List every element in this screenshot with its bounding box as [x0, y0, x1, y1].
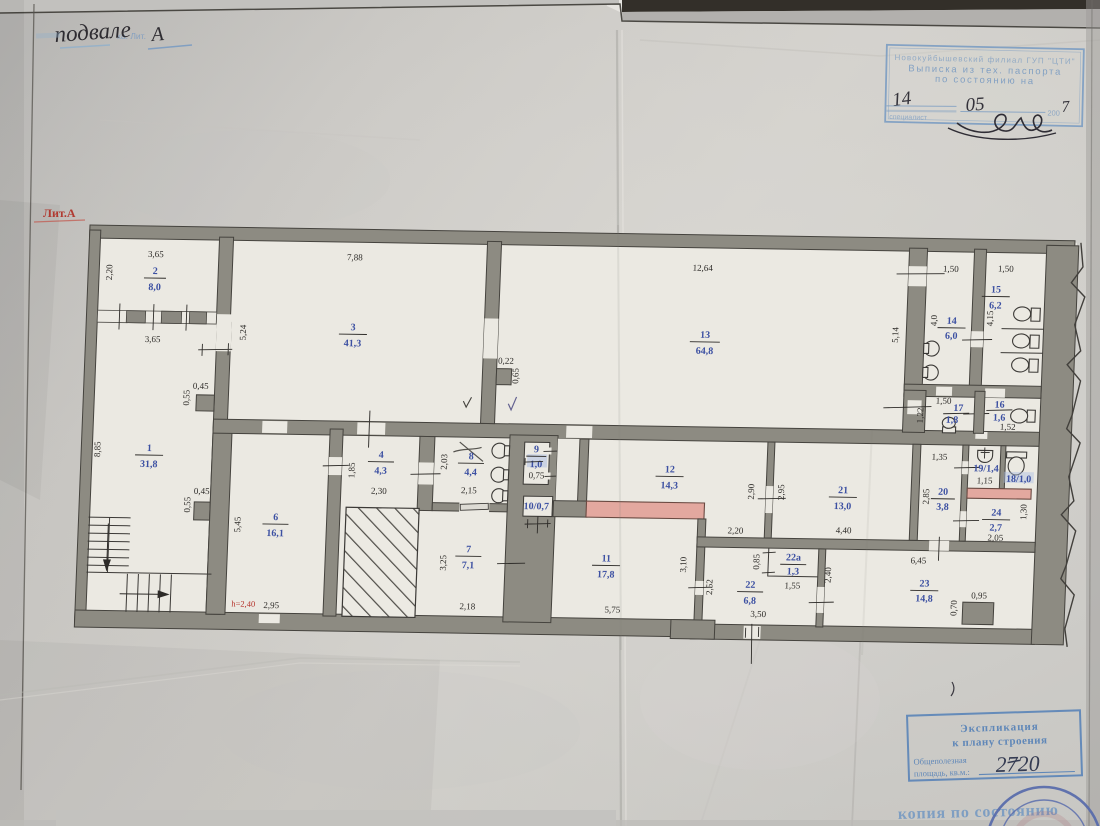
svg-text:3: 3	[350, 322, 355, 333]
svg-text:4,40: 4,40	[836, 525, 853, 535]
svg-text:0,45: 0,45	[193, 381, 210, 391]
svg-text:3,8: 3,8	[936, 502, 949, 513]
svg-text:2,30: 2,30	[371, 486, 388, 496]
svg-text:2,90: 2,90	[746, 483, 757, 499]
svg-text:0,70: 0,70	[948, 600, 959, 616]
svg-text:h=2,40: h=2,40	[231, 599, 255, 609]
svg-text:8,85: 8,85	[92, 441, 103, 457]
svg-text:200: 200	[1047, 108, 1060, 117]
svg-text:2,52: 2,52	[704, 579, 715, 595]
svg-text:2,20: 2,20	[104, 264, 115, 280]
svg-text:21: 21	[838, 485, 848, 496]
svg-text:14: 14	[947, 316, 957, 327]
svg-text:подвале: подвале	[54, 17, 132, 47]
svg-text:6,2: 6,2	[989, 300, 1002, 311]
svg-text:2,20: 2,20	[727, 525, 744, 535]
svg-text:5,75: 5,75	[604, 604, 621, 614]
svg-text:14: 14	[891, 88, 913, 111]
svg-text:22: 22	[745, 580, 755, 591]
svg-text:1,50: 1,50	[998, 264, 1015, 274]
svg-text:2,05: 2,05	[987, 533, 1004, 543]
svg-text:7,88: 7,88	[347, 252, 364, 262]
svg-text:4: 4	[378, 450, 383, 461]
svg-text:0,65: 0,65	[510, 367, 521, 383]
svg-text:специалист: специалист	[889, 114, 928, 122]
svg-text:1,52: 1,52	[1000, 422, 1016, 432]
svg-text:6: 6	[273, 512, 278, 523]
svg-text:1,35: 1,35	[931, 452, 948, 462]
svg-text:16: 16	[994, 400, 1004, 411]
svg-text:площадь, кв.м.:: площадь, кв.м.:	[914, 767, 970, 779]
svg-text:1,85: 1,85	[346, 462, 357, 478]
svg-text:6,8: 6,8	[743, 596, 756, 607]
svg-text:3,10: 3,10	[678, 556, 689, 572]
svg-text:3,25: 3,25	[438, 554, 449, 570]
svg-text:Экспликация: Экспликация	[960, 721, 1039, 735]
svg-text:1: 1	[147, 443, 152, 454]
svg-text:Общеполезная: Общеполезная	[913, 755, 967, 767]
svg-text:4,15: 4,15	[985, 310, 996, 326]
svg-text:9: 9	[534, 444, 539, 455]
svg-text:13: 13	[700, 330, 710, 341]
svg-text:0,95: 0,95	[971, 590, 988, 600]
svg-text:2,95: 2,95	[776, 484, 787, 500]
svg-text:1,0: 1,0	[529, 459, 542, 470]
svg-text:18/1,0: 18/1,0	[1006, 474, 1032, 485]
svg-text:7: 7	[466, 544, 471, 555]
svg-text:2720: 2720	[995, 751, 1040, 777]
svg-text:13,0: 13,0	[834, 501, 852, 512]
svg-text:12,64: 12,64	[692, 263, 713, 273]
svg-text:4,0: 4,0	[929, 314, 939, 326]
svg-text:0,22: 0,22	[498, 356, 514, 366]
svg-text:6,0: 6,0	[945, 331, 958, 342]
svg-text:24: 24	[991, 508, 1001, 519]
svg-text:8,0: 8,0	[148, 282, 161, 293]
svg-text:0,45: 0,45	[194, 486, 211, 496]
svg-text:1,3: 1,3	[786, 566, 799, 577]
svg-text:22а: 22а	[786, 552, 801, 563]
svg-text:0,75: 0,75	[528, 470, 545, 480]
svg-text:3,65: 3,65	[148, 249, 165, 259]
svg-text:8: 8	[468, 451, 473, 462]
svg-text:41,3: 41,3	[344, 338, 362, 349]
svg-text:2,03: 2,03	[439, 453, 450, 469]
svg-text:3,65: 3,65	[145, 334, 162, 344]
svg-text:14,8: 14,8	[915, 593, 933, 604]
svg-text:1,50: 1,50	[943, 264, 960, 274]
svg-text:10/0,7: 10/0,7	[523, 501, 549, 512]
svg-text:6,45: 6,45	[910, 555, 927, 565]
svg-text:1,15: 1,15	[977, 475, 994, 485]
svg-text:2,15: 2,15	[461, 485, 478, 495]
svg-text:1,50: 1,50	[936, 396, 953, 406]
svg-text:1,30: 1,30	[1018, 504, 1029, 520]
svg-text:05: 05	[965, 94, 985, 116]
svg-text:0,55: 0,55	[181, 389, 192, 405]
svg-text:Лит.А: Лит.А	[43, 206, 76, 220]
svg-text:4,4: 4,4	[464, 467, 477, 478]
svg-text:1,55: 1,55	[784, 580, 801, 590]
svg-text:23: 23	[919, 578, 929, 589]
svg-text:5,24: 5,24	[238, 324, 249, 340]
svg-text:5,14: 5,14	[890, 326, 901, 342]
svg-text:2,40: 2,40	[823, 567, 834, 583]
svg-text:11: 11	[601, 553, 611, 564]
svg-text:3,50: 3,50	[750, 609, 767, 619]
svg-text:64,8: 64,8	[695, 346, 713, 357]
svg-text:1,22: 1,22	[915, 407, 926, 423]
svg-text:0,55: 0,55	[182, 496, 193, 512]
svg-text:16,1: 16,1	[266, 528, 284, 539]
svg-text:17: 17	[953, 403, 963, 414]
svg-text:31,8: 31,8	[140, 459, 158, 470]
svg-text:2,18: 2,18	[459, 601, 476, 611]
svg-text:2: 2	[153, 266, 158, 277]
svg-text:5,45: 5,45	[232, 516, 243, 532]
svg-text:19/1,4: 19/1,4	[973, 463, 999, 474]
svg-text:1,8: 1,8	[945, 415, 958, 426]
svg-text:15: 15	[991, 284, 1001, 295]
svg-text:20: 20	[938, 487, 948, 498]
svg-text:17,8: 17,8	[597, 569, 615, 580]
svg-text:4,3: 4,3	[374, 466, 387, 477]
svg-text:2,85: 2,85	[921, 488, 932, 504]
svg-text:2,95: 2,95	[263, 600, 280, 610]
svg-text:12: 12	[665, 464, 675, 475]
svg-text:7,1: 7,1	[461, 560, 474, 571]
svg-text:14,3: 14,3	[660, 480, 678, 491]
svg-text:0,85: 0,85	[751, 553, 762, 569]
